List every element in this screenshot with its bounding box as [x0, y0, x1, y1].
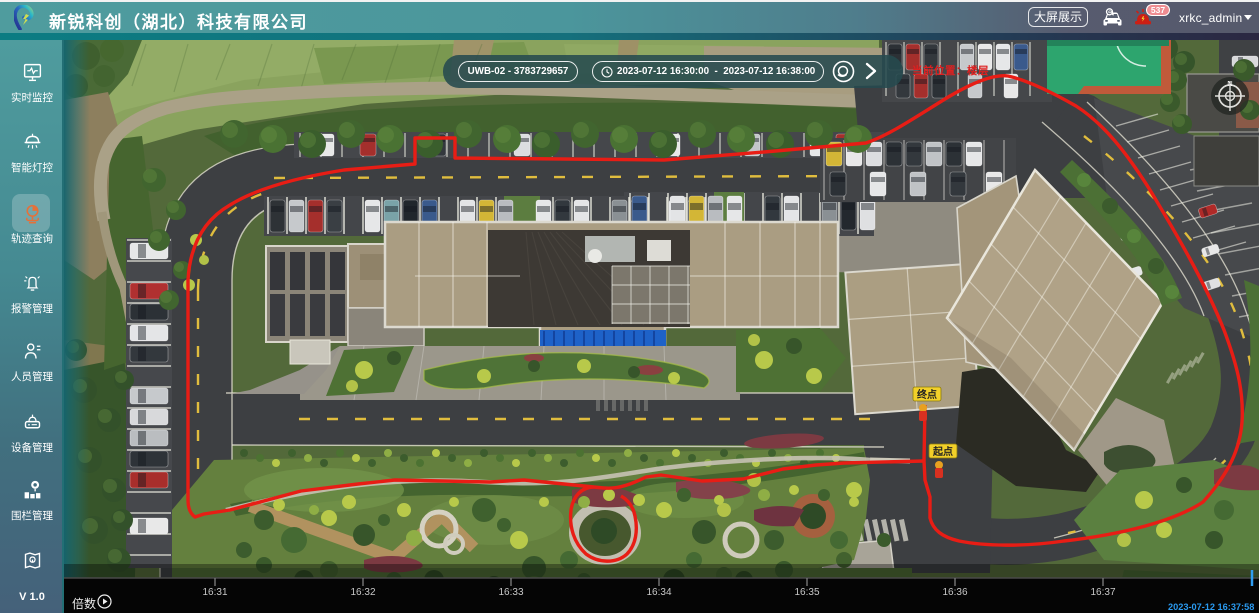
svg-text:终点: 终点	[917, 388, 937, 401]
svg-text:起点: 起点	[932, 445, 953, 458]
svg-text:N: N	[1227, 79, 1232, 88]
svg-text:当前位置：楼层: 当前位置：楼层	[912, 64, 989, 77]
